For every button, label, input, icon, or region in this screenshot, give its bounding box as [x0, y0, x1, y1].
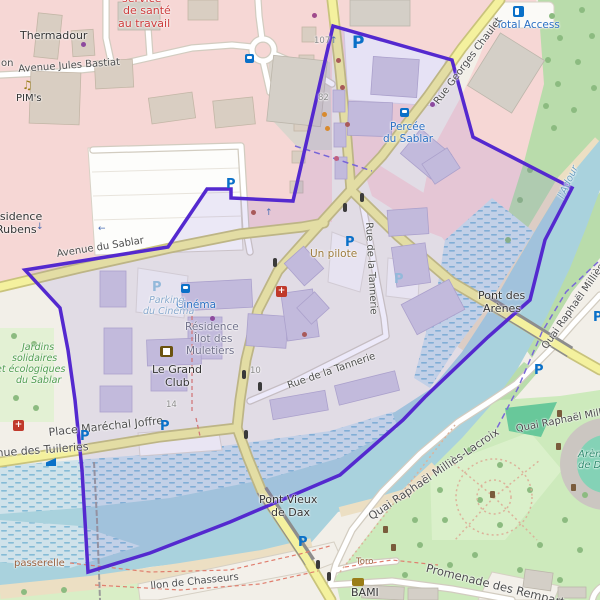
parking-icon: P	[345, 235, 355, 250]
parking-icon: P	[226, 177, 236, 192]
parking-icon: P	[394, 272, 404, 287]
parking-icon: P	[352, 33, 364, 53]
poi-dot	[210, 316, 215, 321]
traffic-signal-icon	[316, 560, 320, 569]
traffic-signal-icon	[273, 258, 277, 267]
statue-icon	[383, 526, 388, 533]
bank-icon	[352, 578, 364, 586]
bus-stop-icon	[400, 108, 409, 117]
traffic-signal-icon	[327, 572, 331, 581]
parking-icon: P	[593, 310, 600, 325]
oneway-arrow-icon: ↑	[330, 36, 338, 46]
fountain-icon	[557, 410, 562, 417]
parking-icon: P	[152, 280, 162, 295]
poi-dot	[81, 42, 86, 47]
bus-stop-icon	[181, 284, 190, 293]
oneway-arrow-icon: ↑	[265, 208, 273, 218]
poi-dot	[334, 156, 339, 161]
cinema-icon	[160, 346, 173, 357]
traffic-signal-icon	[258, 382, 262, 391]
fuel-station-icon	[513, 6, 524, 17]
poi-dot	[251, 210, 256, 215]
parking-icon: P	[80, 429, 90, 444]
music-venue-icon: ♫	[22, 78, 33, 92]
oneway-arrow-icon: ↓	[36, 222, 44, 232]
poi-dot	[302, 332, 307, 337]
map-canvas[interactable]: Thermadour service de santé au travail A…	[0, 0, 600, 600]
poi-dot	[336, 58, 341, 63]
poi-dot	[345, 122, 350, 127]
traffic-signal-icon	[360, 193, 364, 202]
traffic-signal-icon	[242, 370, 246, 379]
bus-stop-icon	[245, 54, 254, 63]
statue-icon	[391, 544, 396, 551]
poi-dot	[312, 13, 317, 18]
poi-dot	[325, 126, 330, 131]
poi-dot	[322, 112, 327, 117]
poi-dot	[430, 102, 435, 107]
fountain-icon	[556, 443, 561, 450]
monument-icon	[490, 491, 495, 498]
map-base-layers	[0, 0, 600, 600]
oneway-arrow-icon: ←	[98, 224, 106, 234]
hospital-icon: +	[276, 286, 287, 297]
parking-icon: P	[534, 363, 544, 378]
poi-dot	[340, 85, 345, 90]
parking-icon: P	[160, 419, 170, 434]
hospital-icon: +	[13, 420, 24, 431]
fountain-icon	[571, 484, 576, 491]
parking-icon: P	[298, 535, 308, 550]
traffic-signal-icon	[343, 203, 347, 212]
traffic-signal-icon	[244, 430, 248, 439]
